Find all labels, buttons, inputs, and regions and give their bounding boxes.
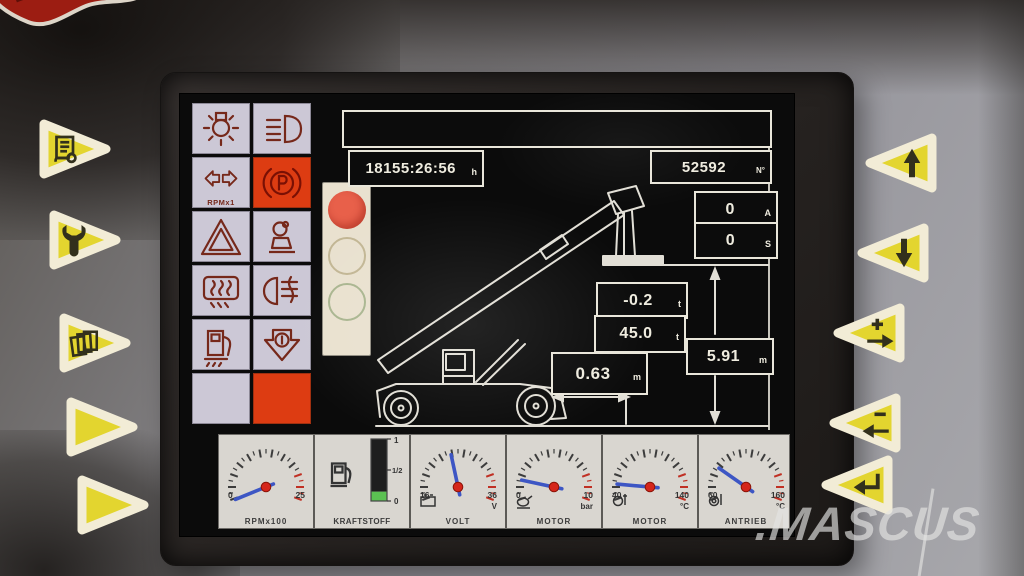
display-bezel: RPMx1 18155:26:56 h 52592 N° 0 A 0 S bbox=[160, 72, 854, 566]
gauge-motor-5: 40140°CMOTOR bbox=[601, 435, 697, 528]
message-bar bbox=[342, 110, 772, 148]
seconds-readout: 0 S bbox=[694, 222, 778, 259]
right-shadow bbox=[978, 0, 1024, 576]
gauge-volt-3: 1636VVOLT bbox=[409, 435, 505, 528]
red-logo-sticker bbox=[0, 0, 176, 61]
blank bbox=[73, 409, 109, 445]
pages-icon bbox=[66, 325, 102, 361]
capacity-readout: 45.0 t bbox=[594, 315, 686, 353]
traffic-light-2-off bbox=[328, 237, 366, 275]
lift-height-readout: 5.91 m bbox=[686, 338, 774, 375]
button-pages[interactable] bbox=[50, 306, 138, 380]
load-center-readout: 0.63 m bbox=[551, 352, 648, 395]
traffic-light-indicator bbox=[322, 182, 371, 356]
button-arrow-up[interactable] bbox=[858, 126, 946, 200]
rear-window-heat-icon bbox=[192, 265, 250, 316]
seat-switch-icon bbox=[253, 211, 311, 262]
plus-right-icon bbox=[862, 315, 898, 351]
scroll-icon bbox=[46, 131, 82, 167]
svg-text:1: 1 bbox=[394, 436, 399, 445]
headlight-icon bbox=[253, 103, 311, 154]
blank-cell bbox=[192, 373, 250, 424]
button-arrow-down[interactable] bbox=[850, 216, 938, 290]
lcd-screen: RPMx1 18155:26:56 h 52592 N° 0 A 0 S bbox=[179, 93, 795, 537]
active-red-indicator bbox=[253, 373, 311, 424]
watermark: .MASCUS bbox=[753, 496, 983, 551]
svg-text:140: 140 bbox=[675, 490, 689, 500]
svg-text:°C: °C bbox=[680, 502, 689, 511]
svg-text:36: 36 bbox=[488, 490, 498, 500]
gauge-rpmx100-1: 025RPMx100 bbox=[219, 435, 313, 528]
button-blank-rpt-5[interactable] bbox=[68, 468, 156, 542]
arrow-down-icon bbox=[886, 235, 922, 271]
arrow-up-icon bbox=[894, 145, 930, 181]
svg-text:0: 0 bbox=[228, 490, 233, 500]
load-readout: -0.2 t bbox=[596, 282, 688, 319]
button-plus-right[interactable] bbox=[826, 296, 914, 370]
counter-readout: 52592 N° bbox=[650, 150, 772, 184]
svg-text:bar: bar bbox=[581, 502, 593, 511]
hour-meter: 18155:26:56 h bbox=[348, 150, 484, 187]
fuel-pump-icon bbox=[192, 319, 250, 370]
button-blank-rpt-4[interactable] bbox=[57, 390, 145, 464]
svg-text:25: 25 bbox=[296, 490, 306, 500]
blank bbox=[84, 487, 120, 523]
svg-text:1/2: 1/2 bbox=[392, 466, 402, 475]
icon-grid: RPMx1 bbox=[192, 103, 311, 424]
minus-left-icon bbox=[858, 405, 894, 441]
svg-text:V: V bbox=[492, 502, 498, 511]
hazard-triangle-icon bbox=[192, 211, 250, 262]
traffic-light-3-off bbox=[328, 283, 366, 321]
gauge-strip: 025RPMx10011/20KRAFTSTOFF1636VVOLT010bar… bbox=[218, 434, 790, 529]
svg-text:10: 10 bbox=[584, 490, 594, 500]
work-light-icon bbox=[192, 103, 250, 154]
turn-signals-icon: RPMx1 bbox=[192, 157, 250, 208]
dashboard-photo: RPMx1 18155:26:56 h 52592 N° 0 A 0 S bbox=[0, 0, 1024, 576]
parking-brake-icon bbox=[253, 157, 311, 208]
wrench-icon bbox=[56, 222, 92, 258]
traffic-light-1-on bbox=[328, 191, 366, 229]
gauge-kraftstoff-2: 11/20KRAFTSTOFF bbox=[313, 435, 409, 528]
gauge-motor-4: 010barMOTOR bbox=[505, 435, 601, 528]
svg-text:0: 0 bbox=[394, 497, 399, 506]
fog-light-icon bbox=[253, 265, 311, 316]
button-scroll[interactable] bbox=[30, 112, 118, 186]
shift-down-icon bbox=[253, 319, 311, 370]
button-wrench[interactable] bbox=[40, 203, 128, 277]
